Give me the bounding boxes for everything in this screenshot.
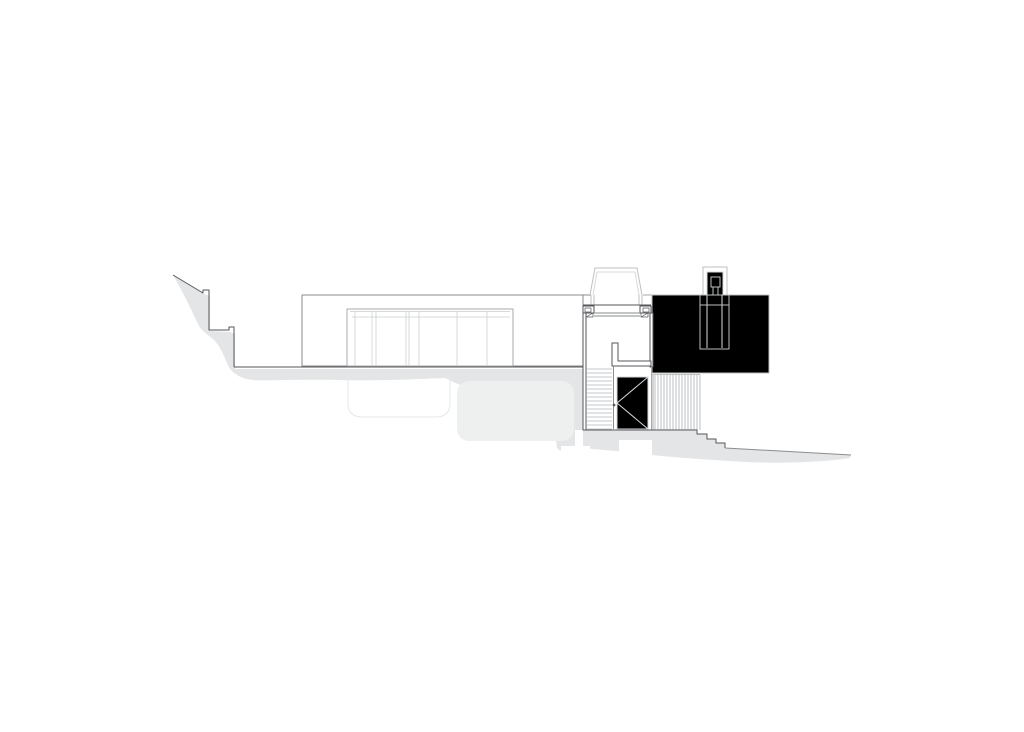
- footing-wall-white-cut: [575, 430, 583, 447]
- fireplace-column: [700, 295, 729, 349]
- skylight-curb-lines: [591, 295, 642, 305]
- stair-door-handle: [613, 404, 616, 407]
- footing-pad-white-cut: [561, 446, 590, 455]
- architectural-section-drawing-page: [0, 0, 1024, 732]
- stair-landing-guard: [612, 343, 651, 366]
- footing-white-cut-under-door: [619, 440, 652, 457]
- buried-volume-right-fill: [457, 381, 574, 441]
- stair-treads: [587, 369, 612, 429]
- chimney-cap: [711, 277, 720, 287]
- post-cut-left-hatch: [586, 313, 593, 317]
- stair-door-panel: [617, 377, 648, 429]
- retaining-wall-hatch: [655, 375, 697, 430]
- skylight-inner-profile: [593, 272, 639, 295]
- post-cut-right-hatch: [641, 313, 648, 317]
- stair-tower-right-wall: [650, 313, 653, 367]
- building-section-drawing: [0, 0, 1024, 732]
- stair-tower-left-wall: [583, 313, 586, 430]
